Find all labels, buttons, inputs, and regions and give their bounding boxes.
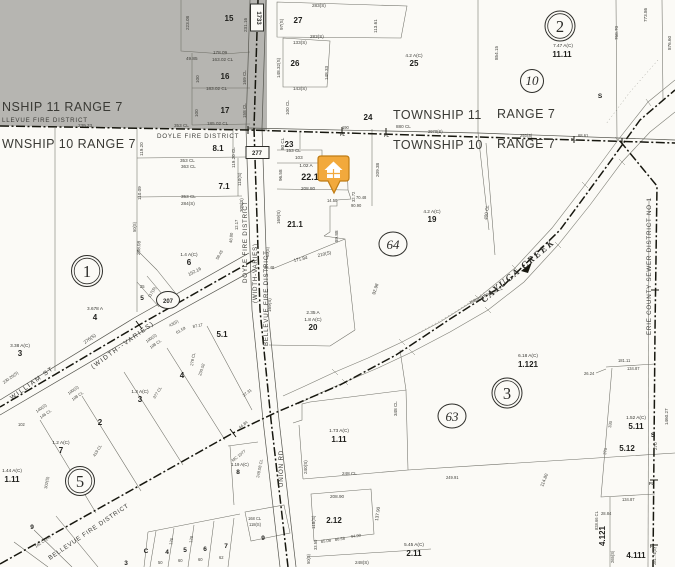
dimension-label: 100 [195,75,200,83]
fire-district-label: UNION RD [278,450,285,487]
dimension-label: 283(S) [312,3,326,8]
dimension-label: 25 [140,284,145,289]
route-number: 1733 [255,11,261,25]
parcel-number: 1.121 [518,360,539,369]
dimension-label: 293(S) [520,133,533,138]
route-number: 277 [252,151,263,157]
lot-number: 5 [183,547,187,554]
dimension-label: 153 CL [286,148,301,153]
dimension-label: 208.08 [136,240,142,255]
dimension-label: 68.61 [578,133,589,138]
township-label: RANGE 7 [497,137,555,151]
parcel-number: 2 [98,418,103,427]
acreage-label: 3.678 A [87,306,104,311]
fire-district-label: (WIDTH-VARIES) [252,243,259,303]
dimension-label: 208.90 [330,494,344,499]
lot-number: 5 [140,295,144,302]
dimension-label: FL [571,137,577,142]
acreage-label: 1.73 A(C) [329,428,349,433]
dimension-label: 12.17 [234,219,239,230]
lot-number: 9 [261,535,265,542]
township-label: TOWNSHIP 10 [393,138,483,152]
parcel-number: 24 [364,113,373,122]
township-label: TOWNSHIP 11 [393,108,482,122]
dimension-label: 169(S) [267,298,272,312]
lot-number: 4 [165,549,169,556]
dimension-label: 363 CL [181,164,196,169]
parcel-number: 16 [221,72,230,81]
dimension-label: 248 CL [342,471,357,476]
block-number: 64 [387,237,401,252]
parcel-number: 2.11 [406,549,422,558]
parcel-number: 4 [93,313,98,322]
dimension-label: 48.80 [228,232,234,243]
dimension-label: 62 [219,555,224,560]
fire-district-label: DOYLE FIRE DISTRICT [242,201,249,283]
dimension-label: 50(S) [306,553,311,564]
parcel-number: 3 [138,395,143,404]
dimension-label: 270 [653,442,658,450]
dimension-label: 190 [342,125,350,130]
lot-number: 8 [236,469,240,476]
dimension-label: 33.50 [313,539,318,550]
fire-district-label: LLEVUE FIRE DISTRICT [2,117,88,124]
parcel-number: 1.11 [331,435,347,444]
dimension-label: 118(S) [249,522,262,527]
acreage-label: 1.44 A(C) [2,468,22,473]
dimension-label: FL [650,544,656,549]
dimension-label: 353 CL [181,194,196,199]
dimension-label: 119.20 CL [231,147,236,168]
acreage-label: 7.47 A(C) [553,43,573,48]
dimension-label: 110(S) [237,172,242,186]
acreage-label: 1.02 A [299,163,313,168]
dimension-label: 768.70 [614,26,619,40]
township-label: RANGE 7 [497,107,555,121]
township-label: WNSHIP 10 RANGE 7 [2,137,136,151]
acreage-label: 2.35 A [306,310,320,315]
lot-number: 3 [124,560,128,567]
parcel-number: 6 [187,258,192,267]
dimension-label: 265(S) [610,550,615,563]
dimension-label: 89.88 [334,230,339,242]
lot-number: 6 [203,546,207,553]
parcel-number: 1.11 [4,475,20,484]
dimension-label: 880 CL [396,124,411,129]
dimension-label: 231.16 [243,18,248,32]
dimension-label: 80 CL [280,137,285,150]
dimension-label: FL [649,481,655,486]
dimension-label: 96.58 [278,169,283,181]
dimension-label: 143(S) [293,86,307,91]
dimension-label: 102 [18,422,26,427]
fire-district-label: DOYLE FIRE DISTRICT [157,133,239,140]
lot-number: C [144,548,149,555]
parcel-number: 2.12 [326,516,342,525]
dimension-label: 183.02 CL [206,86,228,91]
block-number: 10 [526,73,540,88]
parcel-number: 27 [294,16,303,25]
dimension-label: 249.91 [446,475,459,480]
parcel-number: 17 [221,106,230,115]
dimension-label: 133(S) [293,40,307,45]
dimension-label: 281.74(S) [652,546,657,565]
parcel-number: 4 [180,371,185,380]
dimension-label: 60(S) [265,246,270,257]
parcel-number: 4.111 [626,551,646,560]
section-number: 3 [503,384,511,403]
dimension-label: 113.61 [373,19,378,33]
parcel-number: 26 [291,59,300,68]
dimension-label: 158 CL [242,103,247,118]
dimension-label: 119.20 [139,142,144,156]
dimension-label: 35.48 [264,265,275,270]
dimension-label: 240(S) [303,460,308,474]
parcel-number: 5.11 [628,422,644,431]
section-number: 5 [76,472,84,491]
block-number: 63 [446,409,460,424]
parcel-number: 7 [59,446,64,455]
map-canvas[interactable]: NSHIP 11 RANGE 7WNSHIP 10 RANGE 7TOWNSHI… [0,0,675,567]
parcel-number: 11.11 [552,50,572,59]
dimension-label: 168 CL [248,516,262,521]
parcel-number: 19 [428,215,437,224]
dimension-label: 26.24 [584,371,595,376]
dimension-label: FL [340,132,346,137]
dimension-label: 90.90 [351,203,362,208]
dimension-label: 248(S) [355,560,369,565]
dimension-label: 50(S) [132,221,137,232]
dimension-label: 169(S) [276,210,281,224]
parcel-number: 25 [410,59,419,68]
parcel-map: NSHIP 11 RANGE 7WNSHIP 10 RANGE 7TOWNSHI… [0,0,675,567]
dimension-label: 185.02 CL [207,121,229,126]
dimension-label: 163.02 CL [212,57,234,62]
dimension-label: 110.09 [137,186,142,200]
dimension-label: 876.60 [667,36,672,50]
dimension-label: 2970(S) [428,129,443,134]
parcel-number: 15 [225,14,234,23]
dimension-label: 353 CL [174,123,189,128]
parcel-number: 4.121 [598,525,607,546]
dimension-label: 118(S) [311,515,316,529]
dimension-label: 134.87 [627,366,640,371]
dimension-label: 181.11 [618,358,631,363]
dimension-label: 284(S) [181,201,195,206]
acreage-label: 4.2 A(C) [423,209,441,214]
dimension-label: FL [384,133,390,138]
parcel-number: 3 [18,349,23,358]
acreage-label: 1.4 A(C) [180,252,198,257]
acreage-label: 6.18 A(C) [518,353,538,358]
dimension-label: 100 CL [285,100,290,115]
dimension-label: 223.08 [185,16,190,30]
dimension-label: 134.87 [622,497,635,502]
dimension-label: 60 [198,557,203,562]
lot-number: 7 [224,543,228,550]
dimension-label: 70.48 [356,195,367,200]
dimension-label: 208.80 [301,186,315,191]
acreage-label: 4.2 A(C) [405,53,423,58]
acreage-label: 1.19 A(C) [231,462,249,467]
section-number: 2 [556,17,564,36]
dimension-label: 169 CL [242,70,247,85]
parcel-number: 5.12 [619,444,635,453]
dimension-label: 773.86 [643,8,648,22]
parcel-number: 22.1 [301,172,319,182]
dimension-label: 14.50 [327,198,338,203]
parcel-number: 5.1 [216,330,228,339]
dimension-label: 49.85 [186,56,198,61]
dimension-label: 283(S) [310,34,324,39]
acreage-label: 5.45 A(C) [404,542,424,547]
acreage-label: 1.2 A(C) [52,440,70,445]
dimension-label: 854.15 [494,46,499,60]
parcel-number: 20 [309,323,318,332]
acreage-label: 1.52 A(C) [626,415,646,420]
section-number: 1 [83,262,91,281]
dimension-label: 100 [194,109,199,117]
dimension-label: 239.33 [78,123,92,128]
dimension-label: 97(S) [279,18,284,30]
fire-district-label: ERIE COUNTY SEWER DISTRICT NO 1 [646,197,653,335]
dimension-label: 828.66 CL [594,510,599,530]
lot-number: S [598,93,603,100]
route-number: 207 [163,299,174,305]
dimension-label: 348 CL [393,401,398,416]
parcel-number: 7.1 [218,182,230,191]
dimension-label: 308(S) [239,198,244,212]
dimension-label: 103 [295,155,303,160]
lot-number: S [651,432,656,439]
acreage-label: 1.8 A(C) [304,317,322,322]
parcel-number: 8.1 [212,144,224,153]
dimension-label: 28.84 [601,511,612,516]
acreage-label: 3.38 A(C) [10,343,30,348]
dimension-label: 148.33 [324,66,329,80]
dimension-label: 148.32(S) [276,57,281,78]
township-label: NSHIP 11 RANGE 7 [2,100,123,114]
acreage-label: 1.3 A(C) [131,389,149,394]
dimension-label: 50 [158,560,163,565]
lot-number: 9 [30,524,34,531]
dimension-label: 353 CL [180,158,195,163]
dimension-label: 60 [178,558,183,563]
dimension-label: 178.09 [213,50,227,55]
dimension-label: 209.38 [375,163,380,177]
parcel-number: 21.1 [287,220,303,229]
dimension-label: 1460.27 [664,408,669,425]
